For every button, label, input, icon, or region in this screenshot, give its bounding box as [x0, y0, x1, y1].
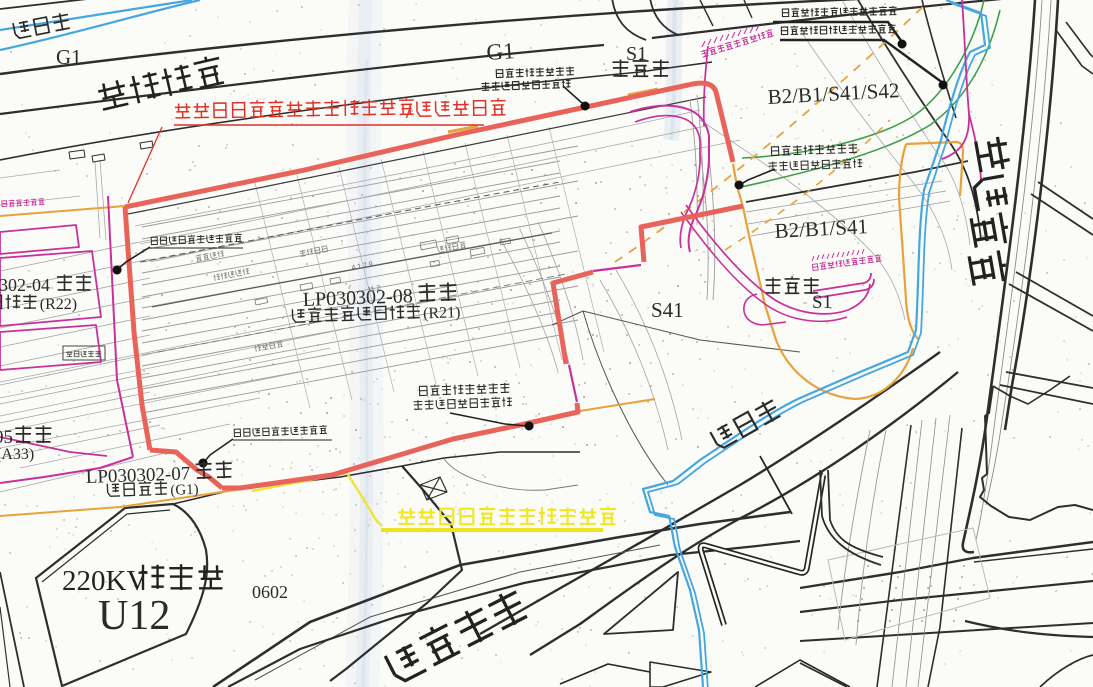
svg-text:S1: S1 — [812, 292, 832, 313]
svg-text:G1: G1 — [56, 45, 82, 69]
svg-text:0302-04: 0302-04 — [0, 275, 50, 295]
svg-text:0602: 0602 — [252, 582, 288, 602]
svg-text:S41: S41 — [651, 298, 684, 322]
svg-text:G1: G1 — [486, 38, 516, 65]
svg-text:(R22): (R22) — [40, 296, 77, 313]
svg-text:(A33): (A33) — [0, 446, 34, 463]
svg-text:/: / — [405, 102, 412, 123]
svg-text:B2/B1/S41: B2/B1/S41 — [774, 214, 869, 243]
svg-text:U12: U12 — [98, 593, 170, 639]
svg-text:05: 05 — [0, 427, 13, 448]
svg-text:(R21): (R21) — [423, 304, 461, 322]
svg-text:(G1): (G1) — [170, 482, 199, 499]
